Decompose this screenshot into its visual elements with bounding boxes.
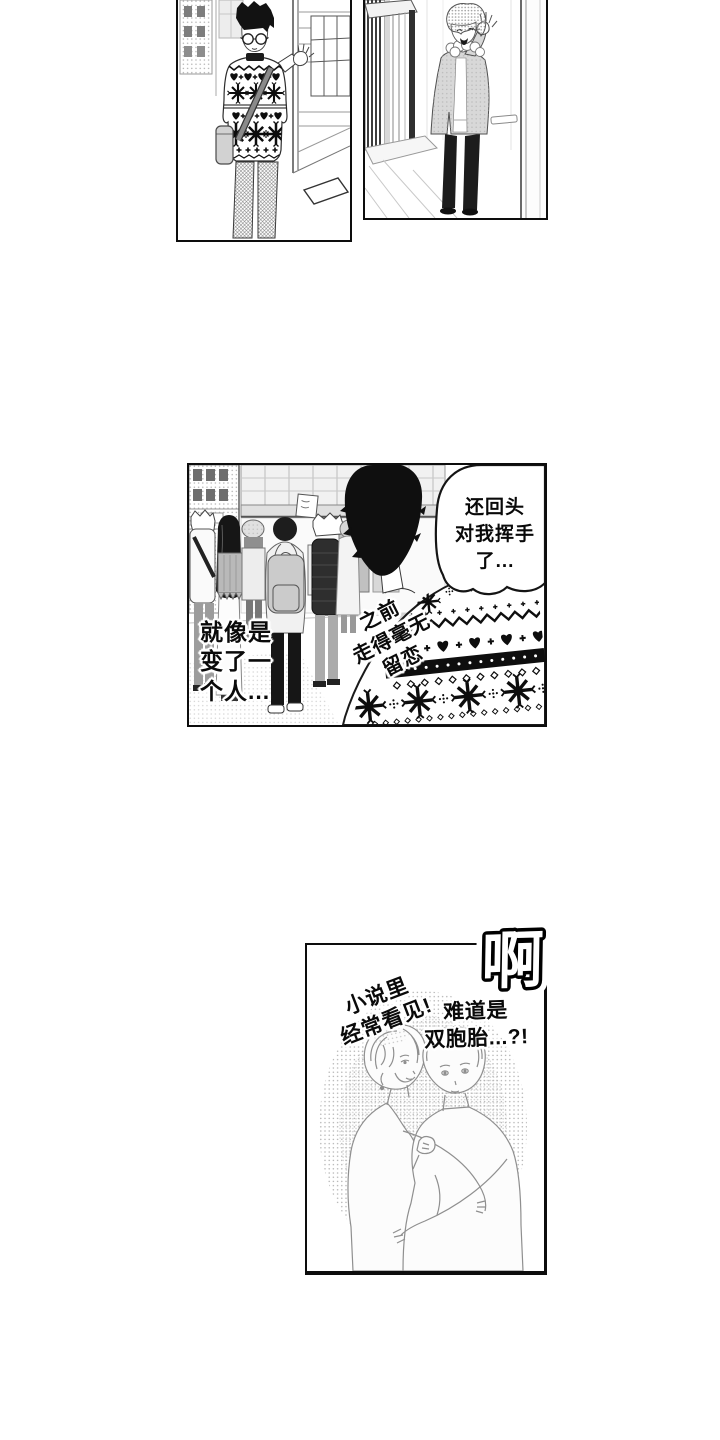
shoulder-bag <box>216 126 233 164</box>
bubble-line: 对我挥手 <box>445 522 545 549</box>
paper-on-ground <box>304 178 348 204</box>
alley-wave-art <box>365 0 546 218</box>
wavy-hair <box>447 4 486 37</box>
bubble-line: 还回头 <box>445 495 545 522</box>
right-building <box>293 0 350 173</box>
panel-street-crowd: 还回头 对我挥手 了... 就像是 变了一 个人... 之前 走得毫无 留恋 <box>187 463 547 727</box>
caption-changed-person: 就像是 变了一 个人... <box>200 618 272 706</box>
pants-right-leg <box>258 162 278 238</box>
glasses-left-lens <box>243 34 253 44</box>
speech-bubble-text: 还回头 对我挥手 了... <box>445 495 545 576</box>
turtleneck-collar <box>246 53 264 61</box>
pants-left-leg <box>233 162 254 238</box>
panel-man-walking <box>176 0 352 242</box>
pants-leg-right <box>463 134 480 210</box>
earring <box>381 1087 384 1090</box>
sfx-ah-glyph: 啊 <box>481 926 544 997</box>
bubble-line: 了... <box>445 549 545 576</box>
pants-leg-left <box>442 134 457 208</box>
glasses-right-lens <box>256 34 266 44</box>
sfx-ah: 啊 啊 <box>464 914 566 1006</box>
waving-hand <box>294 52 308 66</box>
street-walk-art <box>178 0 350 240</box>
comic-page: 还回头 对我挥手 了... 就像是 变了一 个人... 之前 走得毫无 留恋 <box>0 0 720 1440</box>
wall-pipe <box>491 115 518 124</box>
waving-person <box>431 4 497 216</box>
shop-sign <box>296 494 318 518</box>
panel-person-waving <box>363 0 548 220</box>
